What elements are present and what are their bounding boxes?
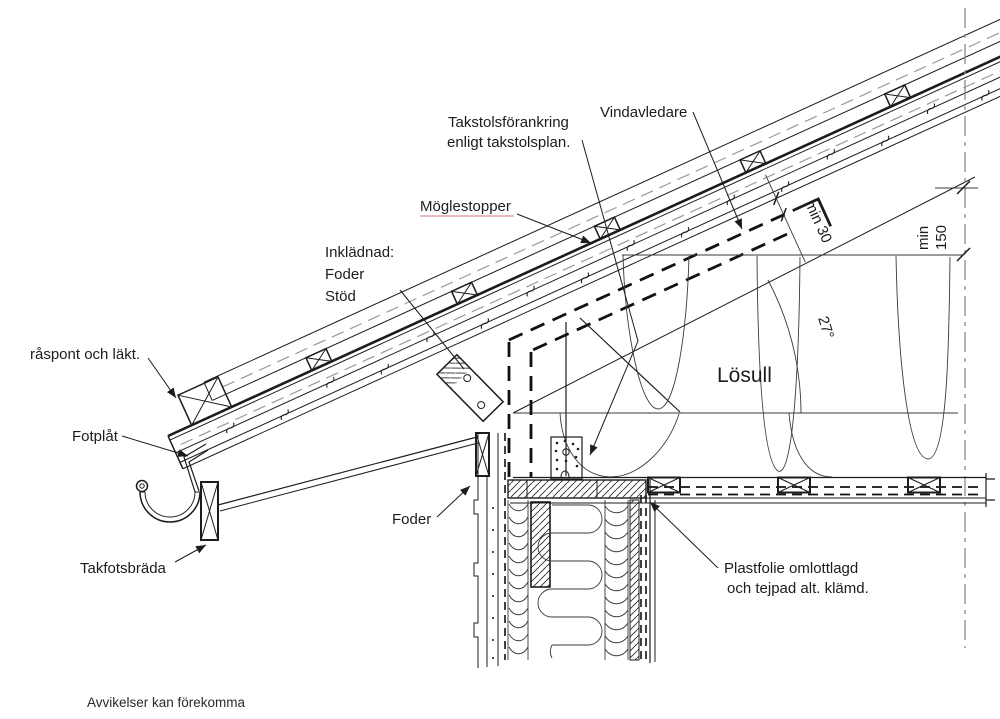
eave-detail-page: min 30: [0, 0, 1000, 719]
label-takstolsforankring-2: enligt takstolsplan.: [447, 134, 570, 151]
inner-strip: [630, 500, 639, 660]
break-mark: [986, 473, 995, 507]
angle-label: 27°: [814, 314, 837, 341]
dim-min150-label: min 150: [915, 222, 950, 250]
label-losull: Lösull: [717, 364, 772, 387]
leader-vindavledare: [693, 112, 742, 229]
raspont-top-line: [168, 0, 1000, 436]
label-vindavledare: Vindavledare: [600, 104, 687, 121]
leader-plastfolie: [650, 502, 718, 568]
leader-lines: [122, 112, 742, 568]
label-inkladnad-2: Foder: [325, 266, 364, 283]
wall-insulation-right: [605, 500, 628, 660]
label-moglestopper: Möglestopper: [420, 198, 511, 215]
leader-inkladnad: [400, 290, 464, 369]
truss-web: [580, 318, 680, 412]
wall-stud: [531, 502, 550, 587]
label-plastfolie-1: Plastfolie omlottlagd: [724, 560, 858, 577]
wall-insulation-left: [508, 500, 528, 660]
label-takfotsbrada: Takfotsbräda: [80, 560, 167, 577]
label-inkladnad-1: Inklädnad:: [325, 244, 394, 261]
roof-top-line: [204, 0, 1000, 382]
dim-min150: min 150: [915, 181, 978, 261]
label-inkladnad-3: Stöd: [325, 288, 356, 305]
top-plate: [508, 480, 646, 498]
roof-package: min 30: [154, 0, 1000, 532]
gutter: [137, 481, 203, 523]
leader-moglestopper: [517, 214, 591, 243]
wind-deflector: [509, 199, 831, 367]
footnote: Avvikelser kan förekomma: [87, 695, 246, 710]
label-raspont: råspont och läkt.: [30, 346, 140, 363]
siding-nails: [492, 507, 494, 659]
angle-arc: [768, 280, 801, 413]
label-takstolsforankring-1: Takstolsförankring: [448, 114, 569, 131]
stod-bracket: [437, 355, 503, 422]
label-foder: Foder: [392, 511, 431, 528]
label-fotplat: Fotplåt: [72, 428, 119, 445]
soffit: [218, 437, 478, 511]
leader-foder: [437, 486, 470, 517]
leader-takfotsbrada: [175, 545, 206, 562]
leader-raspont: [148, 358, 176, 398]
leader-takstolsforankring: [582, 140, 638, 455]
takfotsbrada-shape: [201, 482, 218, 540]
label-plastfolie-2: och tejpad alt. klämd.: [727, 580, 869, 597]
wall-section: [474, 433, 655, 668]
ceiling-battens: [648, 478, 940, 493]
eave-detail-drawing: min 30: [0, 0, 1000, 719]
leader-fotplat: [122, 436, 188, 456]
underlay-membrane-line: [181, 0, 1000, 445]
